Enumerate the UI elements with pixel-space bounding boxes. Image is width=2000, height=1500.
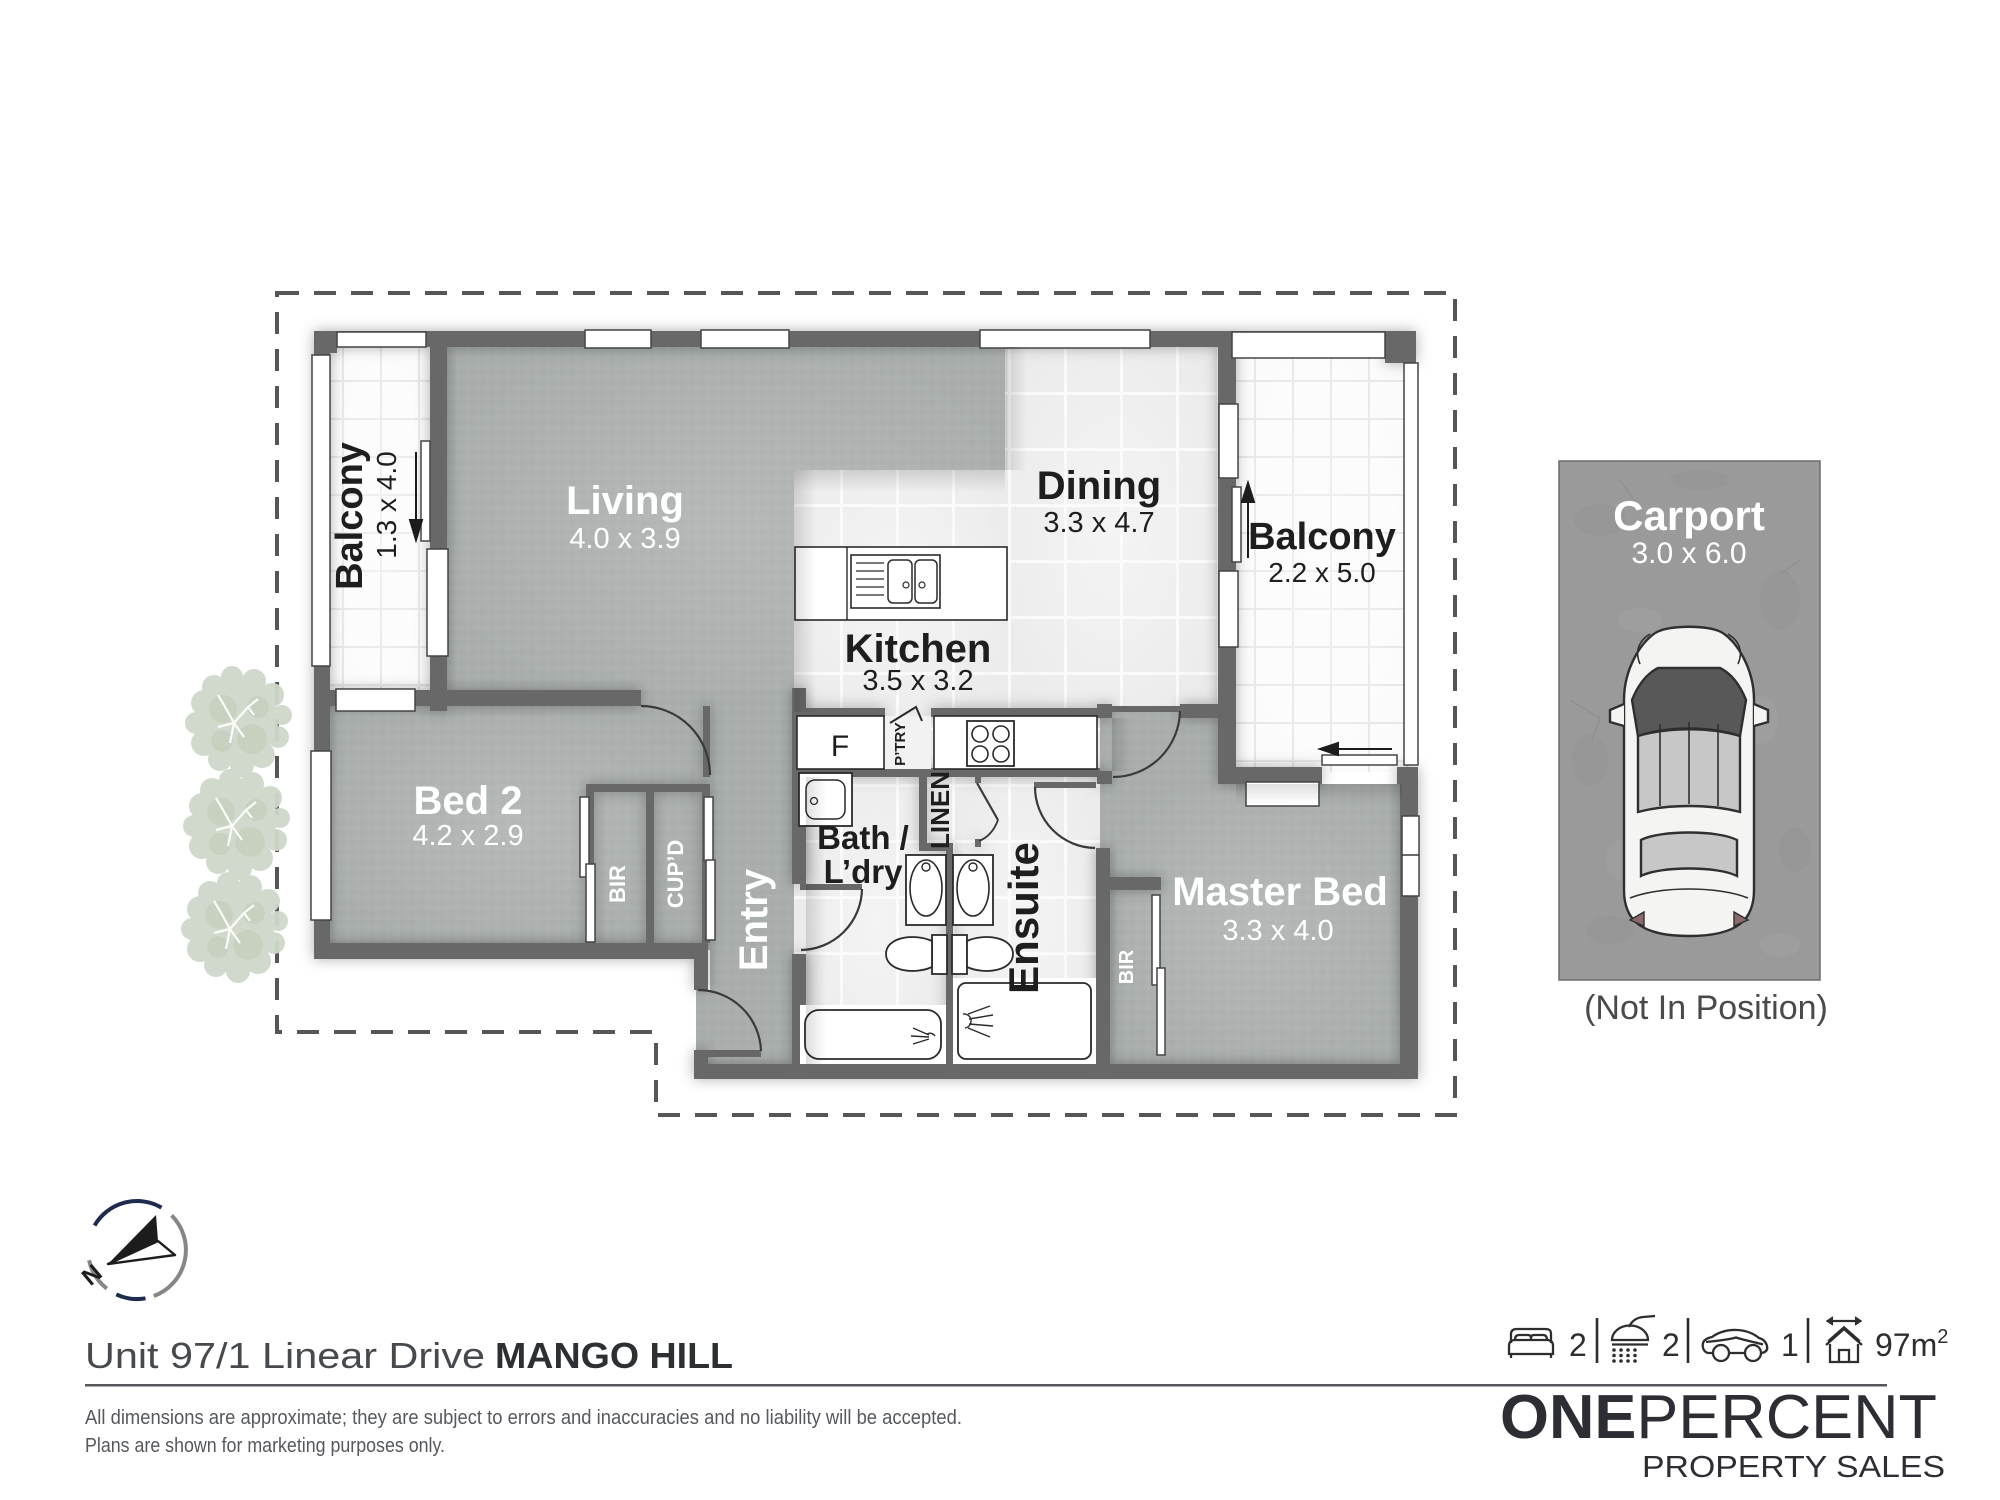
svg-text:3.5 x 3.2: 3.5 x 3.2 [862, 665, 973, 697]
svg-text:CUP’D: CUP’D [663, 840, 688, 908]
svg-text:Carport: Carport [1613, 492, 1765, 539]
svg-text:Living: Living [566, 479, 684, 523]
svg-text:3.3 x 4.0: 3.3 x 4.0 [1222, 915, 1333, 947]
svg-text:MANGO HILL: MANGO HILL [495, 1335, 733, 1376]
svg-text:ONEPERCENT: ONEPERCENT [1500, 1383, 1937, 1452]
svg-text:Bed 2: Bed 2 [414, 779, 523, 823]
svg-text:(Not In Position): (Not In Position) [1584, 989, 1828, 1027]
svg-text:L’dry: L’dry [824, 853, 904, 890]
svg-text:LINEN: LINEN [925, 771, 955, 849]
svg-text:Balcony: Balcony [1248, 516, 1396, 558]
svg-text:2: 2 [1662, 1327, 1680, 1363]
svg-text:Bath /: Bath / [817, 819, 909, 856]
svg-text:97m2: 97m2 [1875, 1326, 1948, 1363]
svg-text:4.0 x 3.9: 4.0 x 3.9 [569, 523, 680, 555]
svg-text:Dining: Dining [1037, 464, 1161, 508]
svg-text:1: 1 [1781, 1327, 1799, 1363]
svg-text:Plans are shown for marketing: Plans are shown for marketing purposes o… [85, 1435, 445, 1457]
svg-text:3.3 x 4.7: 3.3 x 4.7 [1043, 507, 1154, 539]
svg-text:Ensuite: Ensuite [1000, 842, 1047, 994]
svg-text:PROPERTY SALES: PROPERTY SALES [1642, 1449, 1945, 1484]
svg-text:BIR: BIR [1116, 949, 1138, 984]
svg-text:2: 2 [1569, 1327, 1587, 1363]
svg-text:BIR: BIR [605, 865, 630, 903]
svg-text:1.3 x 4.0: 1.3 x 4.0 [371, 451, 402, 558]
svg-text:Balcony: Balcony [329, 442, 371, 590]
svg-text:Master Bed: Master Bed [1172, 870, 1388, 914]
svg-text:F: F [831, 730, 849, 763]
svg-text:Entry: Entry [732, 868, 776, 971]
svg-text:All dimensions are approximate: All dimensions are approximate; they are… [85, 1407, 962, 1429]
svg-text:4.2 x 2.9: 4.2 x 2.9 [412, 820, 523, 852]
svg-text:3.0 x 6.0: 3.0 x 6.0 [1631, 537, 1746, 570]
svg-text:Unit 97/1 Linear Drive: Unit 97/1 Linear Drive [85, 1335, 485, 1376]
svg-text:2.2 x 5.0: 2.2 x 5.0 [1268, 557, 1375, 588]
svg-text:P’TRY: P’TRY [892, 722, 909, 766]
